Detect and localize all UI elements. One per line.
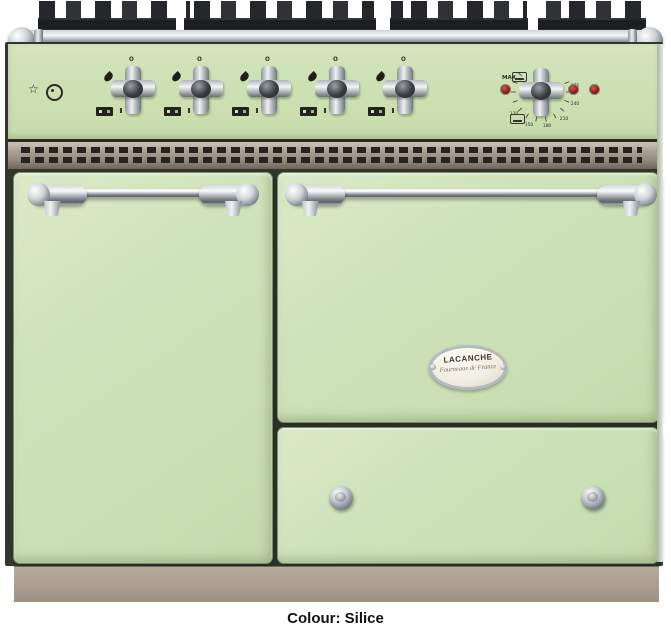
oven-door-right: LACANCHE Fourneaux de France <box>277 172 659 423</box>
indicator-light <box>589 84 600 95</box>
indicator-light <box>500 84 511 95</box>
grate-cluster <box>390 1 528 32</box>
ignition-icon <box>46 84 63 101</box>
thermostat-temp-label: 210 <box>560 116 569 122</box>
handle-bracket <box>289 185 345 205</box>
indicator-light <box>568 84 579 95</box>
grate-cluster <box>538 1 646 32</box>
thermostat-temp-label: 240 <box>571 101 580 107</box>
storage-drawer <box>277 427 659 564</box>
burner-number-mark <box>392 108 394 113</box>
colour-caption: Colour: Silice <box>0 610 671 627</box>
thermostat-temp-label: 180 <box>543 123 552 129</box>
range-cooker-body: ☆ o o o <box>5 42 663 566</box>
burner-knob-1[interactable] <box>111 66 155 114</box>
burner-knob-5[interactable] <box>383 66 427 114</box>
burner-number-mark <box>188 108 190 113</box>
handle-tube <box>318 189 624 198</box>
handle-bracket <box>597 185 653 205</box>
hob-position-icon <box>164 107 181 116</box>
burner-knob-2[interactable] <box>179 66 223 114</box>
plinth <box>14 566 659 602</box>
off-marker: o <box>333 54 338 63</box>
handle-bracket <box>199 185 255 205</box>
burner-knob-3[interactable] <box>247 66 291 114</box>
vent-grille <box>8 139 660 169</box>
product-image: ☆ o o o <box>0 0 671 640</box>
drawer-knob-left[interactable] <box>329 486 353 510</box>
hob-position-icon <box>300 107 317 116</box>
off-marker: o <box>129 54 134 63</box>
drawer-knob-right[interactable] <box>581 486 605 510</box>
oven-door-left <box>13 172 273 564</box>
off-marker: o <box>401 54 406 63</box>
burner-knob-4[interactable] <box>315 66 359 114</box>
grate-cluster <box>38 1 176 32</box>
burner-number-mark <box>324 108 326 113</box>
control-panel: ☆ o o o <box>8 44 660 139</box>
pan-grates <box>0 0 671 33</box>
brand-badge: LACANCHE Fourneaux de France <box>429 345 507 390</box>
side-panel-edge <box>657 44 663 562</box>
handle-bracket <box>31 185 87 205</box>
off-marker: o <box>197 54 202 63</box>
off-marker: o <box>265 54 270 63</box>
burner-number-mark <box>256 108 258 113</box>
burner-number-mark <box>120 108 122 113</box>
thermostat-temp-label: 150 <box>525 122 534 128</box>
grate-cluster <box>184 1 376 32</box>
hob-position-icon <box>96 107 113 116</box>
oven-thermostat-knob[interactable] <box>519 68 563 116</box>
star-icon: ☆ <box>28 82 39 96</box>
hob-position-icon <box>368 107 385 116</box>
hob-position-icon <box>232 107 249 116</box>
